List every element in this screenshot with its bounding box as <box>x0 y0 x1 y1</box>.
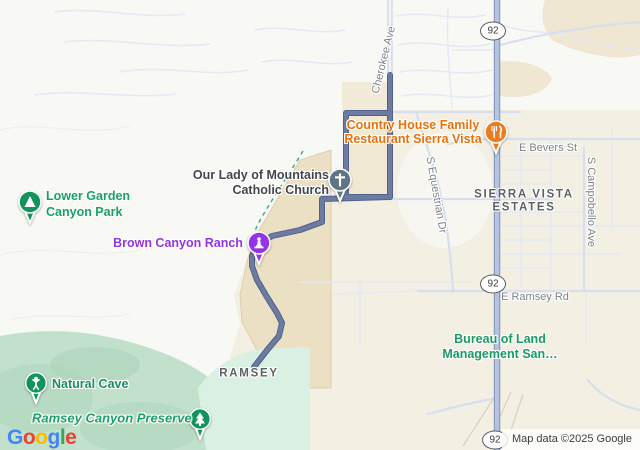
poi-label-line: Catholic Church <box>183 183 329 198</box>
area-label-line: SIERRA VISTA <box>474 189 574 202</box>
poi-label-line: Restaurant Sierra Vista <box>344 132 481 146</box>
terrain-patch <box>497 61 552 97</box>
poi-label-line: Bureau of Land <box>442 332 557 347</box>
area-label-ramsey: RAMSEY <box>219 368 278 381</box>
poi-label-natural-cave[interactable]: Natural Cave <box>52 377 128 391</box>
google-logo[interactable]: Google <box>7 426 76 450</box>
cave-pin[interactable] <box>20 370 52 406</box>
map-canvas[interactable]: 92 92 92 Cherokee Ave Country House Fami… <box>0 0 640 450</box>
area-label-sierra-vista-estates: SIERRA VISTA ESTATES <box>474 189 574 214</box>
poi-label-church[interactable]: Our Lady of Mountains Catholic Church <box>183 168 329 198</box>
poi-label-line: Lower Garden <box>46 188 130 204</box>
street-label-e-bevers: E Bevers St <box>519 142 577 154</box>
ranch-pin[interactable] <box>243 230 275 266</box>
google-logo-letter: G <box>7 426 23 449</box>
poi-label-line: Canyon Park <box>46 204 130 220</box>
poi-label-line: Country House Family <box>344 118 481 132</box>
highway-shield-92-top: 92 <box>480 22 506 41</box>
street-label-s-campobello: S Campobello Ave <box>585 157 597 247</box>
poi-label-restaurant[interactable]: Country House Family Restaurant Sierra V… <box>344 118 481 146</box>
street-label-e-ramsey: E Ramsey Rd <box>501 291 569 303</box>
google-logo-letter: e <box>65 426 76 449</box>
park-pin[interactable] <box>14 189 46 225</box>
map-attribution: Map data ©2025 Google <box>502 429 640 450</box>
poi-label-ramsey-preserve[interactable]: Ramsey Canyon Preserve <box>32 412 192 427</box>
restaurant-pin[interactable] <box>480 119 512 155</box>
google-logo-letter: o <box>35 426 47 449</box>
area-label-line: ESTATES <box>474 201 574 214</box>
poi-label-line: Our Lady of Mountains <box>183 168 329 183</box>
google-logo-letter: g <box>48 426 60 449</box>
google-logo-letter: o <box>23 426 35 449</box>
poi-label-line: Management San… <box>442 347 557 362</box>
poi-label-bureau[interactable]: Bureau of Land Management San… <box>442 332 557 362</box>
poi-label-brown-canyon-ranch[interactable]: Brown Canyon Ranch <box>113 236 243 250</box>
poi-label-lower-garden[interactable]: Lower Garden Canyon Park <box>46 188 130 220</box>
